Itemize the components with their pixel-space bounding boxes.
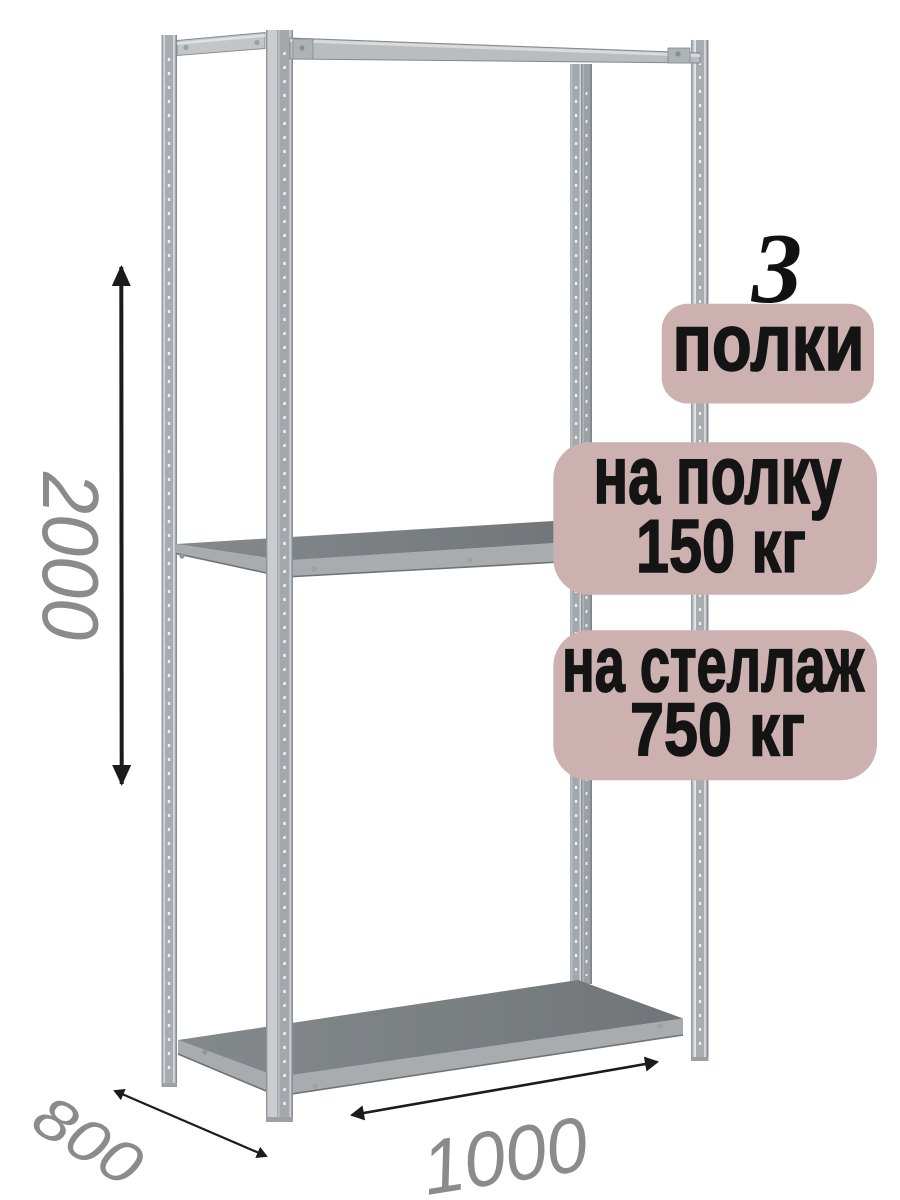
svg-text:750 кг: 750 кг: [630, 688, 805, 772]
svg-text:полки: полки: [673, 298, 865, 388]
svg-text:150 кг: 150 кг: [636, 504, 806, 588]
svg-text:2000: 2000: [26, 471, 115, 640]
